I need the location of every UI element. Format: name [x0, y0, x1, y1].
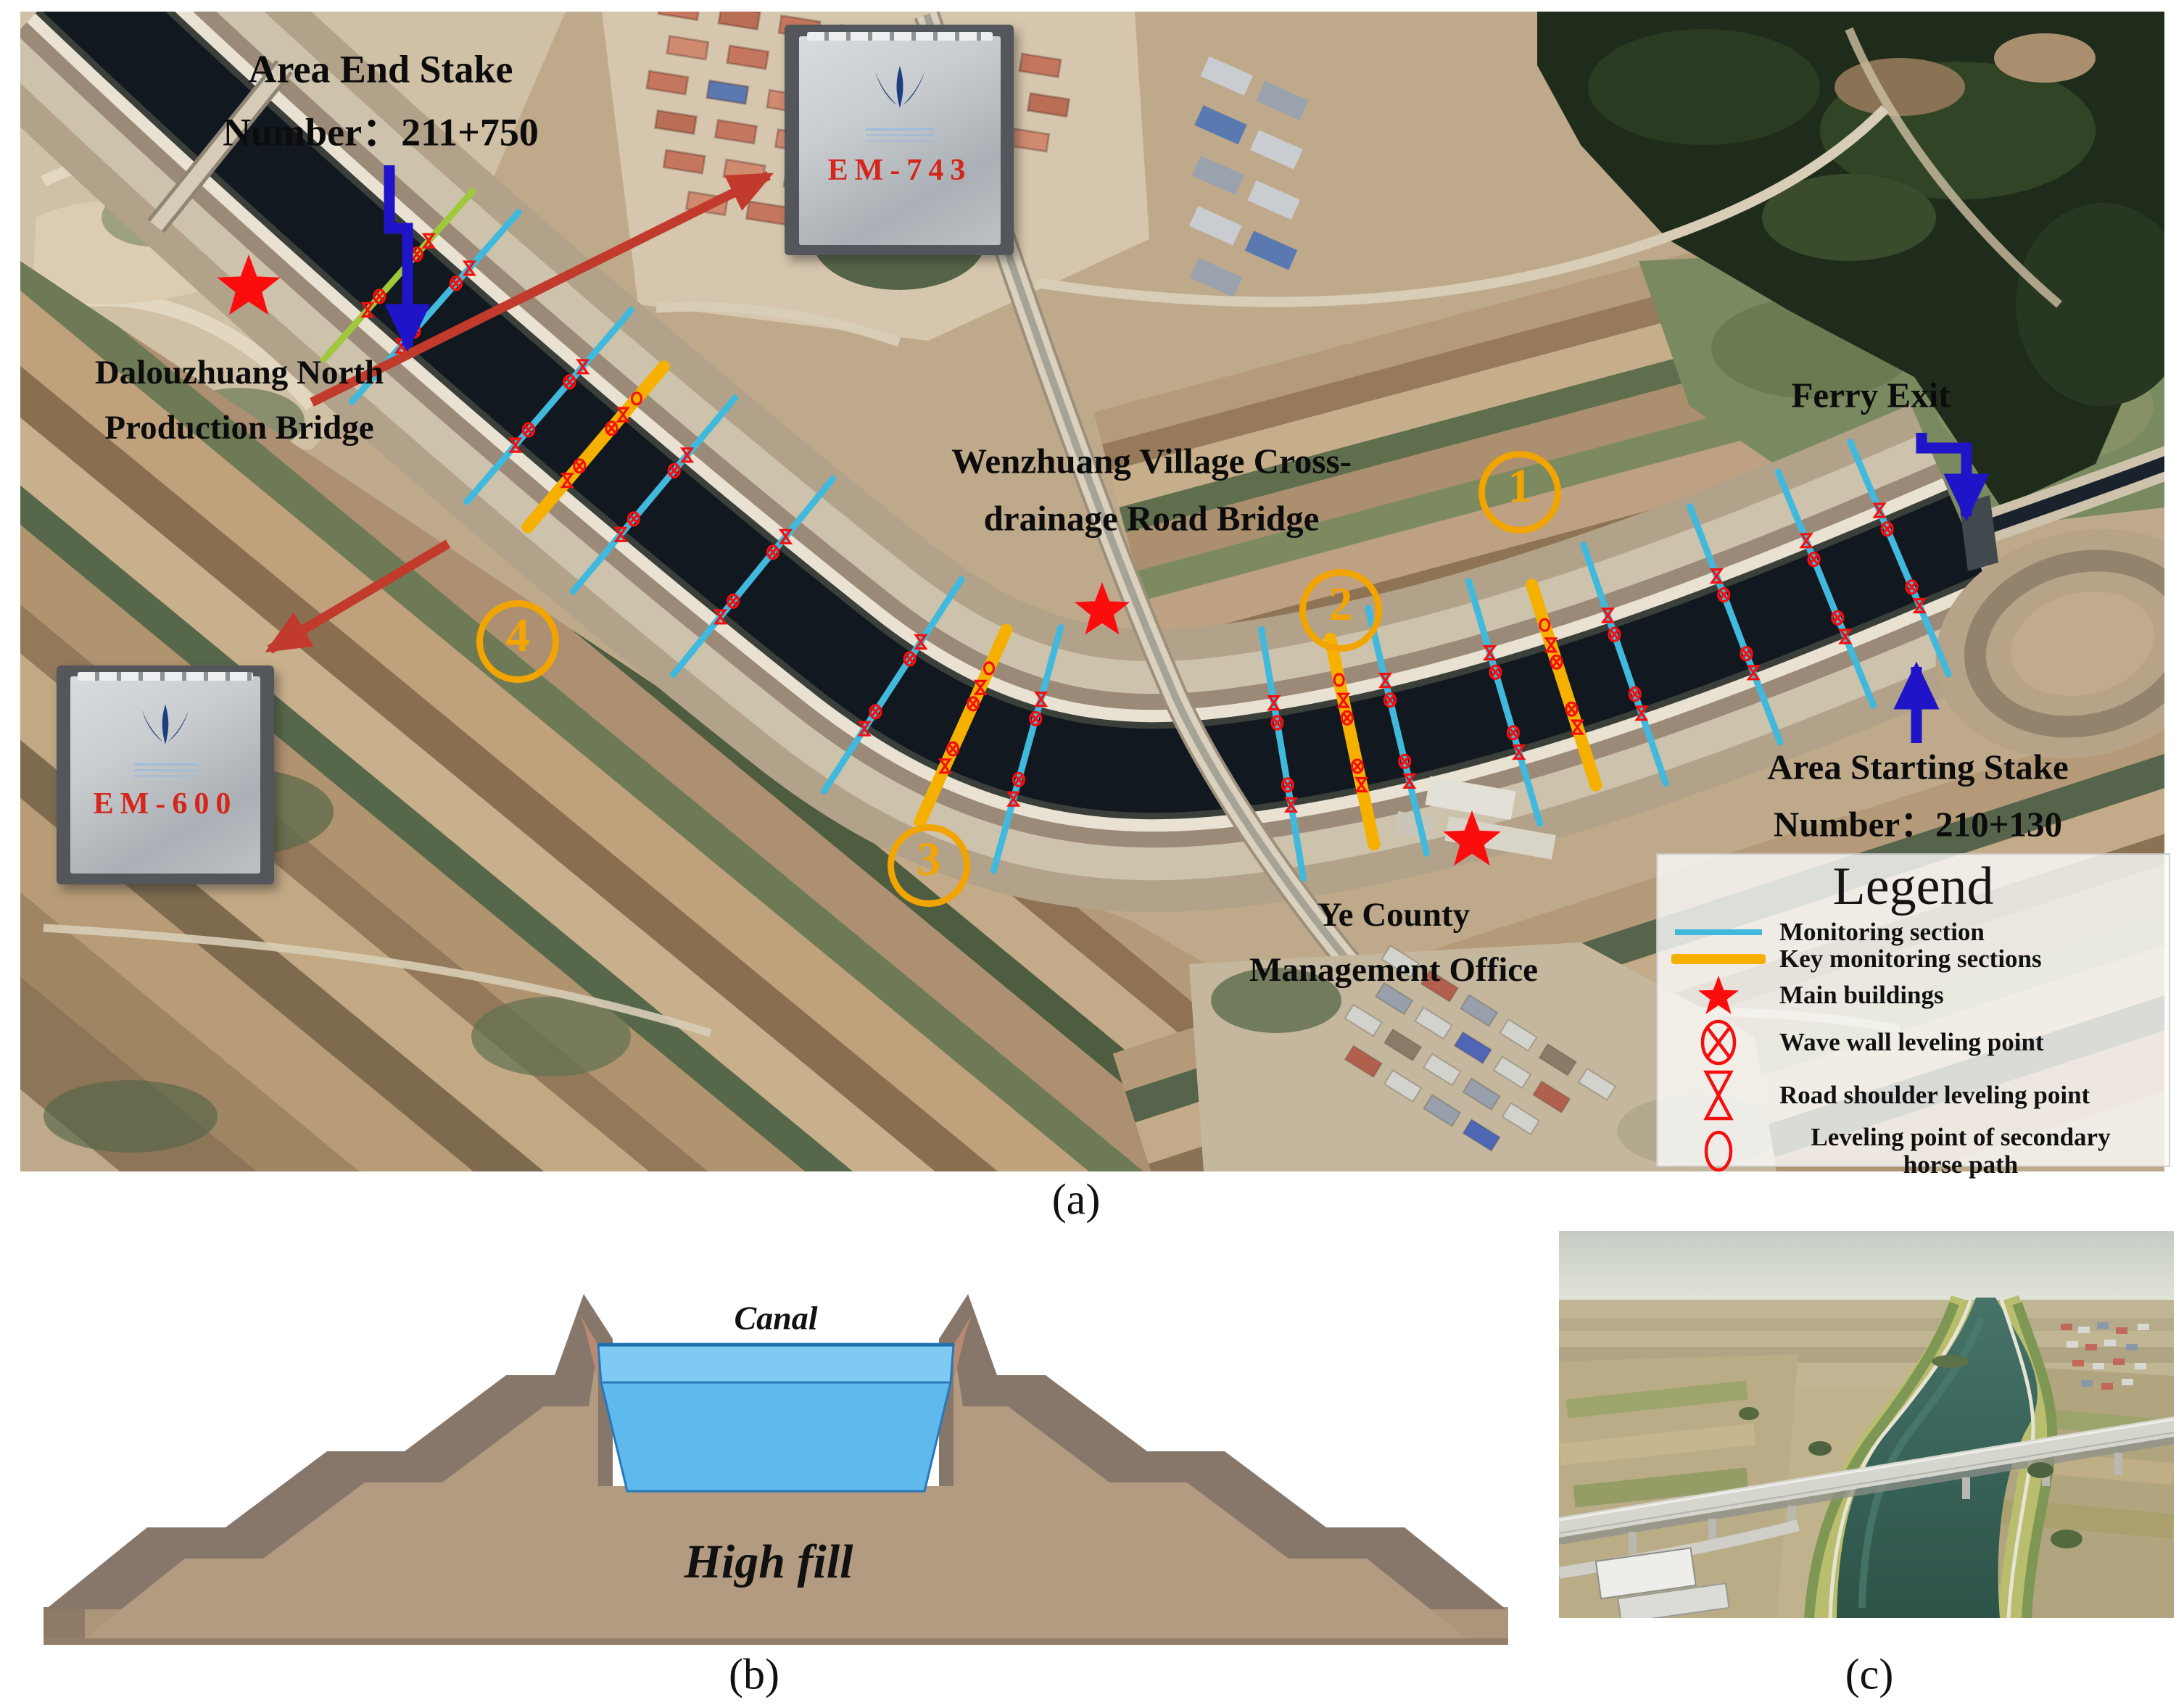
label-ye-county-office: Ye County Management Office — [1249, 887, 1538, 997]
panel-a-caption: (a) — [1052, 1175, 1101, 1225]
legend-row-horse-path-point: Leveling point of secondary horse path — [1658, 1124, 2169, 1179]
main-building-star-icon — [1695, 973, 1742, 1018]
label-ferry-exit: Ferry Exit — [1791, 366, 1950, 423]
sign-id-text: EM-600 — [70, 787, 260, 821]
key-section-number-3: 3 — [888, 824, 970, 907]
em-743-sign: EM-743 — [785, 25, 1014, 255]
monitoring-section-line-icon — [1671, 925, 1766, 939]
key-monitoring-line-icon — [1671, 951, 1766, 967]
panel-b-caption: (b) — [729, 1650, 779, 1700]
high-fill-label: High fill — [684, 1535, 853, 1590]
horse-path-point-icon — [1700, 1126, 1737, 1177]
label-area-end-stake: Area End Stake Number：211+750 — [223, 38, 539, 165]
legend-row-wave-wall-point: Wave wall leveling point — [1658, 1018, 2169, 1067]
sign-hinge — [807, 32, 993, 41]
legend-row-key-sections: Key monitoring sections — [1658, 945, 2169, 973]
sign-id-text: EM-743 — [799, 153, 1001, 188]
figure: EM-743 EM-600 Area End Stake Number：211+… — [0, 0, 2184, 1705]
legend-title: Legend — [1658, 859, 2169, 916]
label-wenzhuang-bridge: Wenzhuang Village Cross- drainage Road B… — [951, 433, 1352, 548]
canal-water-prism — [598, 1345, 954, 1491]
canal-aerial-photo — [1559, 1231, 2174, 1618]
map-legend: Legend Monitoring section Key monitoring… — [1656, 853, 2170, 1167]
road-shoulder-point-icon — [1698, 1067, 1739, 1124]
label-dalouzhuang-bridge: Dalouzhuang North Production Bridge — [95, 345, 384, 455]
key-section-number-4: 4 — [476, 600, 559, 683]
em-600-sign: EM-600 — [57, 665, 274, 884]
legend-row-road-shoulder-point: Road shoulder leveling point — [1658, 1067, 2169, 1124]
sign-subtext-lines — [133, 763, 197, 766]
key-section-number-2: 2 — [1299, 569, 1382, 652]
wave-wall-point-icon — [1698, 1018, 1739, 1067]
label-area-starting-stake: Area Starting Stake Number：210+130 — [1767, 739, 2069, 854]
water-diversion-logo-icon — [869, 63, 930, 121]
canal-label: Canal — [734, 1299, 817, 1337]
water-diversion-logo-icon — [136, 702, 194, 757]
sign-subtext-lines — [866, 128, 935, 130]
legend-row-main-buildings: Main buildings — [1658, 973, 2169, 1018]
panel-c-caption: (c) — [1845, 1650, 1894, 1700]
key-section-number-1: 1 — [1478, 451, 1561, 534]
sign-hinge — [78, 672, 252, 681]
legend-row-monitoring-section: Monitoring section — [1658, 918, 2169, 946]
